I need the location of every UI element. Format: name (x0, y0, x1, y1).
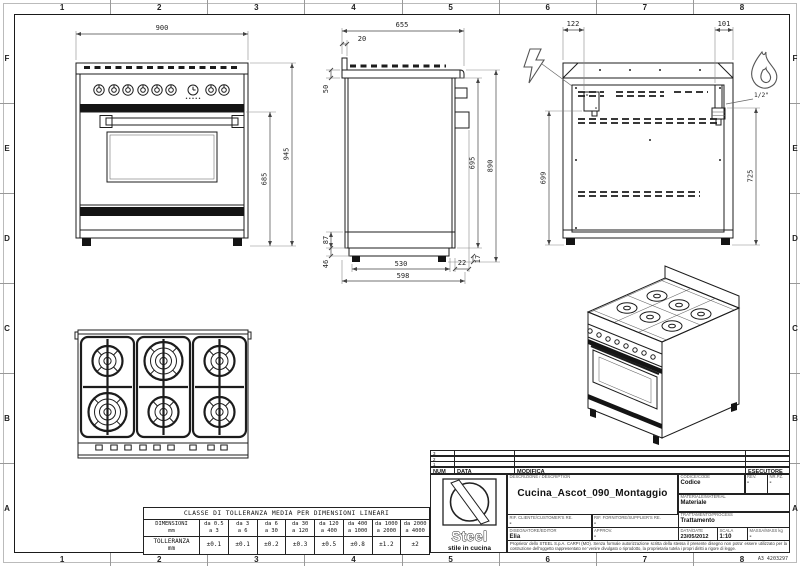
range-to: a 120 (286, 528, 314, 535)
materiale-value: Materiale (679, 500, 789, 507)
materiale-cell: MATERIALE/MATERIAL Materiale (678, 494, 790, 513)
drawing-title: Cucina_Ascot_090_Montaggio (508, 488, 677, 499)
dim-side-lower: 87 (322, 236, 330, 244)
trattamento-cell: TRATTAMENTO/PROCESS Trattamento (678, 512, 790, 528)
tolerance-dimension-row: DIMENSIONI mm da 0.5a 3 da 3a 6 da 6a 30… (144, 520, 429, 537)
tolerance-value-row: TOLLERANZA mm ±0.1 ±0.1 ±0.2 ±0.3 ±0.5 ±… (144, 537, 429, 554)
dimensioni-label: DIMENSIONI (144, 521, 199, 528)
front-view: 900 685 945 (76, 24, 296, 246)
range-to: a 6 (229, 528, 257, 535)
dim-side-feet: 17 (474, 255, 482, 263)
dim-side-front-height: 695 (469, 157, 477, 170)
dimension-range: da 30a 120 (286, 520, 315, 536)
dim-side-handle: 22 (458, 259, 466, 267)
range-from: da 3 (229, 521, 257, 528)
dim-side-top-depth: 655 (396, 21, 409, 29)
codice-value: Codice (679, 480, 744, 487)
dimension-range: da 0.5a 3 (200, 520, 229, 536)
isometric-view (588, 266, 739, 445)
rif-fornitore-cell: RIF. FORNITORE/SUPPLIER'S RE. - (592, 514, 679, 528)
brand-tagline: stile in cucina (448, 545, 491, 552)
range-to: a 3 (200, 528, 228, 535)
range-from: da 1000 (373, 521, 401, 528)
tolerance-value: ±0.1 (229, 537, 258, 554)
legal-disclaimer: Proprieta' dello STEEL S.p.A. CARPI (MO)… (507, 540, 790, 553)
logo-cell: Steel stile in cucina (430, 474, 507, 554)
description-label: DESCRIZIONE / DESCRIPTION (508, 475, 677, 481)
dim-back-electric-offset: 122 (567, 20, 580, 28)
range-from: da 120 (315, 521, 343, 528)
dim-side-depth: 598 (397, 272, 410, 280)
top-view (75, 330, 251, 458)
unit-label: mm (144, 545, 199, 553)
tolleranza-label: TOLLERANZA (144, 538, 199, 546)
disegnatore-cell: DISEGNATORE/EDITOR Elia (507, 527, 592, 541)
clock-icon (186, 85, 200, 99)
nrpz-value: - (768, 480, 789, 487)
scala-cell: SCALA 1:10 (717, 527, 748, 541)
dim-side-backsplash: 20 (358, 35, 366, 43)
electric-supply-icon (524, 49, 544, 83)
brand-name: Steel (452, 528, 488, 544)
range-from: da 30 (286, 521, 314, 528)
nrpz-cell: NR.PZ. - (767, 474, 790, 495)
range-to: a 30 (258, 528, 286, 535)
tolerance-value: ±0.3 (286, 537, 315, 554)
back-view: 122 101 699 725 1/2" (524, 20, 777, 245)
dimension-range: da 400a 1000 (344, 520, 373, 536)
tolerance-value: ±0.1 (200, 537, 229, 554)
tolerance-row-label: TOLLERANZA mm (144, 537, 200, 554)
drawing-sheet: 1 2 3 4 5 6 7 8 1 2 3 4 5 6 7 8 F E D C … (0, 0, 800, 566)
description-cell: DESCRIZIONE / DESCRIPTION Cucina_Ascot_0… (507, 474, 678, 515)
dimension-range: da 1000a 2000 (373, 520, 402, 536)
title-block: 3 2 1 NUM DATA MODIFICA ESECUTORE Steel … (430, 450, 790, 553)
range-to: a 2000 (373, 528, 401, 535)
trattamento-value: Trattamento (679, 518, 789, 525)
range-from: da 400 (344, 521, 372, 528)
dim-back-gas-height: 725 (747, 170, 755, 183)
gas-inlet-pipe (712, 85, 725, 125)
tolerance-value: ±0.8 (344, 537, 373, 554)
massa-cell: MASSA/MASS kg - (747, 527, 790, 541)
tolerance-value: ±1.2 (373, 537, 402, 554)
sheet-code: A3 4203297 (748, 556, 788, 562)
dim-side-base-depth: 530 (395, 260, 408, 268)
gas-connection-size: 1/2" (754, 92, 769, 99)
range-to: a 1000 (344, 528, 372, 535)
dim-side-height: 890 (487, 160, 495, 173)
side-view: 655 20 50 87 46 695 (322, 21, 500, 284)
range-to: a 400 (315, 528, 343, 535)
range-from: da 6 (258, 521, 286, 528)
unit-label: mm (144, 528, 199, 535)
tolerance-value: ±0.2 (258, 537, 287, 554)
rev-cell: REV. - (745, 474, 768, 495)
dim-side-plinth: 46 (322, 260, 330, 268)
dim-front-width: 900 (156, 24, 169, 32)
tolerance-table-title: CLASSE DI TOLLERANZA MEDIA PER DIMENSION… (144, 508, 429, 520)
tolerance-table: CLASSE DI TOLLERANZA MEDIA PER DIMENSION… (143, 507, 430, 555)
dim-front-body-height: 685 (261, 173, 269, 186)
dim-side-worktop: 50 (322, 85, 330, 93)
data-cell: DATA/DATE 23/05/2012 (678, 527, 718, 541)
dim-front-total-height: 945 (283, 148, 291, 161)
gas-flame-icon (752, 52, 777, 88)
dimension-range: da 6a 30 (258, 520, 287, 536)
dim-back-electric-height: 699 (540, 172, 548, 185)
range-from: da 2000 (401, 521, 429, 528)
tolerance-row-label: DIMENSIONI mm (144, 520, 200, 536)
codice-cell: CODICE/CODE Codice (678, 474, 745, 495)
tolerance-value: ±2 (401, 537, 429, 554)
dimension-range: da 2000a 4000 (401, 520, 429, 536)
rev-value: - (746, 480, 767, 487)
dimension-range: da 120a 400 (315, 520, 344, 536)
dimension-range: da 3a 6 (229, 520, 258, 536)
steel-logo: Steel stile in cucina (431, 475, 507, 553)
dim-back-gas-offset: 101 (718, 20, 731, 28)
rif-cliente-cell: RIF. CLIENTE/CUSTOMER'S RE. - (507, 514, 592, 528)
approv-cell: APPROV. - (592, 527, 679, 541)
range-to: a 4000 (401, 528, 429, 535)
range-from: da 0.5 (200, 521, 228, 528)
massa-label: MASSA/MASS kg (748, 528, 789, 534)
tolerance-value: ±0.5 (315, 537, 344, 554)
